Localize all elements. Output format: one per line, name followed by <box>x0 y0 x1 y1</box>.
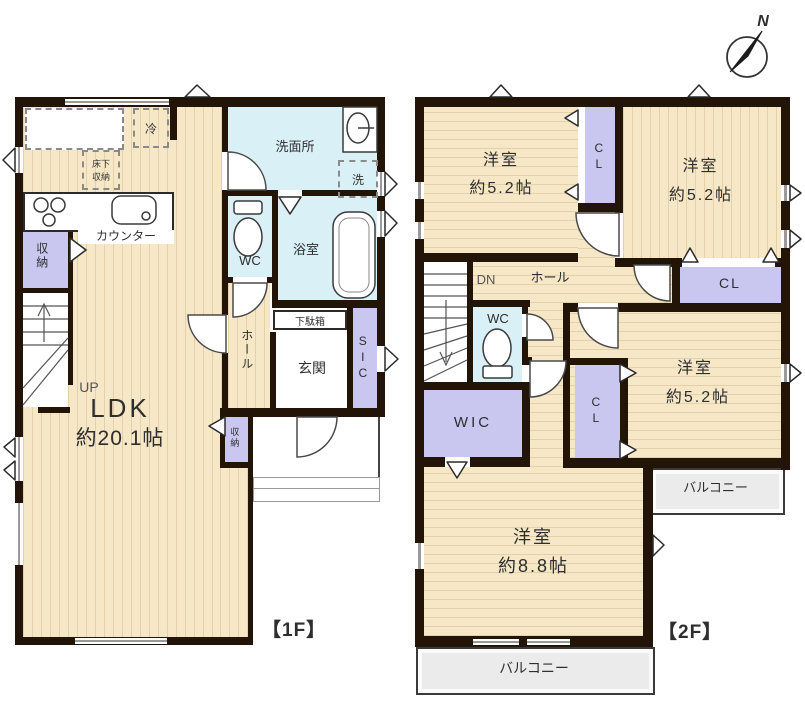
fridge-label: 冷 <box>145 120 157 137</box>
ldk-size-label: 約20.1帖 <box>35 427 205 451</box>
balcony-bottom-label: バルコニー <box>464 660 604 676</box>
counter-label: カウンター <box>78 230 174 244</box>
stairs-2f <box>424 262 467 385</box>
kitchen-counter-top <box>25 108 124 150</box>
room-ldk-extension <box>220 468 248 637</box>
closet2-label: CL <box>702 275 758 291</box>
bedroom3-size: 約5.2帖 <box>642 389 754 407</box>
bedroom1-name: 洋室 <box>446 152 556 170</box>
wic-label: WIC <box>444 414 502 431</box>
bedroom2-size: 約5.2帖 <box>646 187 756 205</box>
fridge: 冷 <box>133 108 169 148</box>
washing-machine-label: 洗 <box>352 171 364 188</box>
underfloor-storage-label: 床下収納 <box>90 157 112 183</box>
shoe-cabinet: 下駄箱 <box>273 310 347 330</box>
kitchen-unit <box>23 192 174 232</box>
storage-entry-label: 収納 <box>229 418 239 458</box>
bedroom2-name: 洋室 <box>648 158 753 176</box>
closet3-label: CL <box>588 386 602 436</box>
hall-1f-label: ホール <box>239 312 253 388</box>
storage-left-label: 収納 <box>34 230 48 282</box>
wc-2f-label: WC <box>479 312 517 327</box>
room-bedroom4 <box>424 467 643 636</box>
room-bedroom4-nook <box>530 365 567 467</box>
bedroom4-name: 洋室 <box>478 527 588 548</box>
hall-nook <box>578 212 615 267</box>
closet1-label: CL <box>591 132 605 182</box>
room-bedroom2 <box>623 107 781 258</box>
bath-label: 浴室 <box>278 243 334 258</box>
underfloor-storage: 床下収納 <box>82 150 120 190</box>
compass-icon <box>727 31 767 77</box>
bedroom1-size: 約5.2帖 <box>444 180 559 198</box>
floor2-tag: 【2F】 <box>658 622 718 644</box>
bedroom4-size: 約8.8帖 <box>476 556 591 577</box>
porch-step <box>253 488 380 502</box>
floor1-tag: 【1F】 <box>262 620 322 642</box>
hall-2f-label: ホール <box>520 271 580 286</box>
ldk-name-label: LDK <box>40 394 200 424</box>
washing-machine: 洗 <box>338 160 378 198</box>
entrance-label: 玄関 <box>284 360 340 376</box>
sic-label: SIC <box>355 322 369 394</box>
stairs-1f <box>23 293 68 407</box>
compass-north-label: N <box>753 13 773 31</box>
wc-1f-label: WC <box>228 254 272 269</box>
balcony-right-label: バルコニー <box>658 481 773 496</box>
floor-plan: 冷 床下収納 洗 下駄箱 <box>0 0 805 714</box>
shoe-cabinet-label: 下駄箱 <box>295 313 325 328</box>
stairs-down-label: DN <box>470 273 502 288</box>
washroom-label: 洗面所 <box>250 140 340 155</box>
porch <box>253 417 377 477</box>
bedroom3-name: 洋室 <box>645 360 745 378</box>
corridor-2f <box>528 303 567 365</box>
